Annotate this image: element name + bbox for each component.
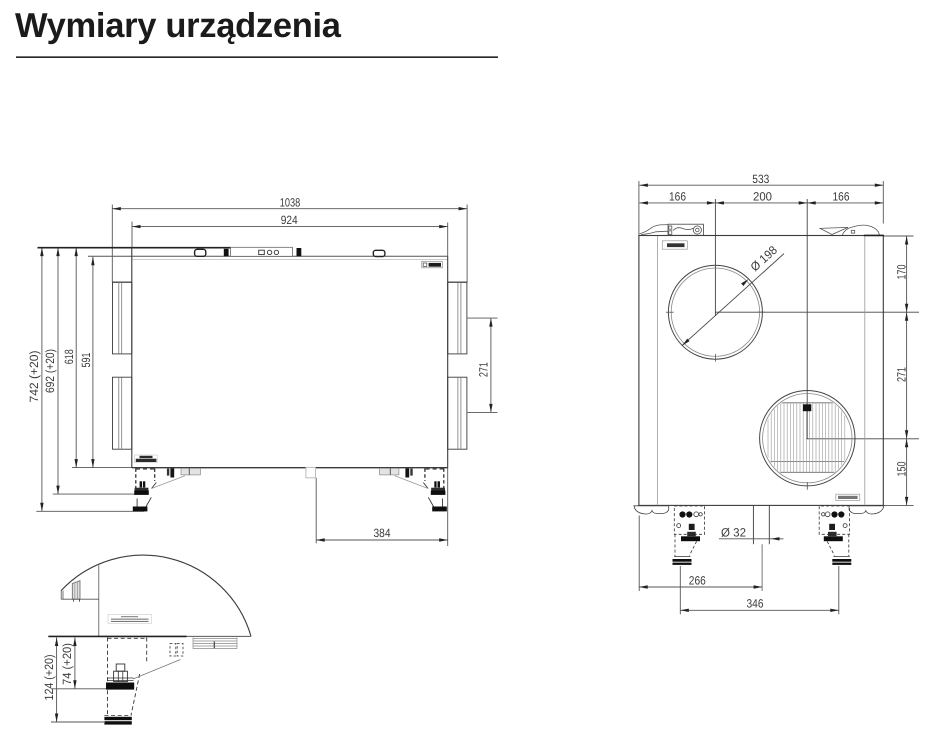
svg-text:533: 533	[752, 172, 769, 186]
svg-text:271: 271	[894, 367, 908, 382]
svg-text:692 (+20): 692 (+20)	[43, 349, 57, 393]
svg-text:266: 266	[689, 573, 706, 587]
svg-text:150: 150	[894, 461, 908, 476]
svg-text:166: 166	[669, 190, 686, 204]
svg-text:74 (+20): 74 (+20)	[60, 643, 74, 685]
svg-text:200: 200	[753, 190, 772, 204]
svg-text:618: 618	[62, 349, 76, 364]
svg-text:271: 271	[476, 362, 490, 377]
svg-text:124 (+20): 124 (+20)	[42, 654, 56, 700]
svg-text:Ø 198: Ø 198	[748, 243, 781, 274]
svg-text:742 (+20): 742 (+20)	[27, 350, 41, 402]
svg-text:384: 384	[374, 526, 391, 540]
svg-text:346: 346	[747, 597, 764, 611]
svg-text:591: 591	[79, 352, 93, 367]
svg-text:924: 924	[281, 213, 298, 227]
svg-text:170: 170	[894, 264, 908, 279]
svg-text:Ø 32: Ø 32	[721, 526, 746, 540]
svg-text:1038: 1038	[280, 195, 301, 209]
svg-text:166: 166	[833, 190, 850, 204]
svg-text:Wymiary urządzenia: Wymiary urządzenia	[15, 7, 342, 45]
